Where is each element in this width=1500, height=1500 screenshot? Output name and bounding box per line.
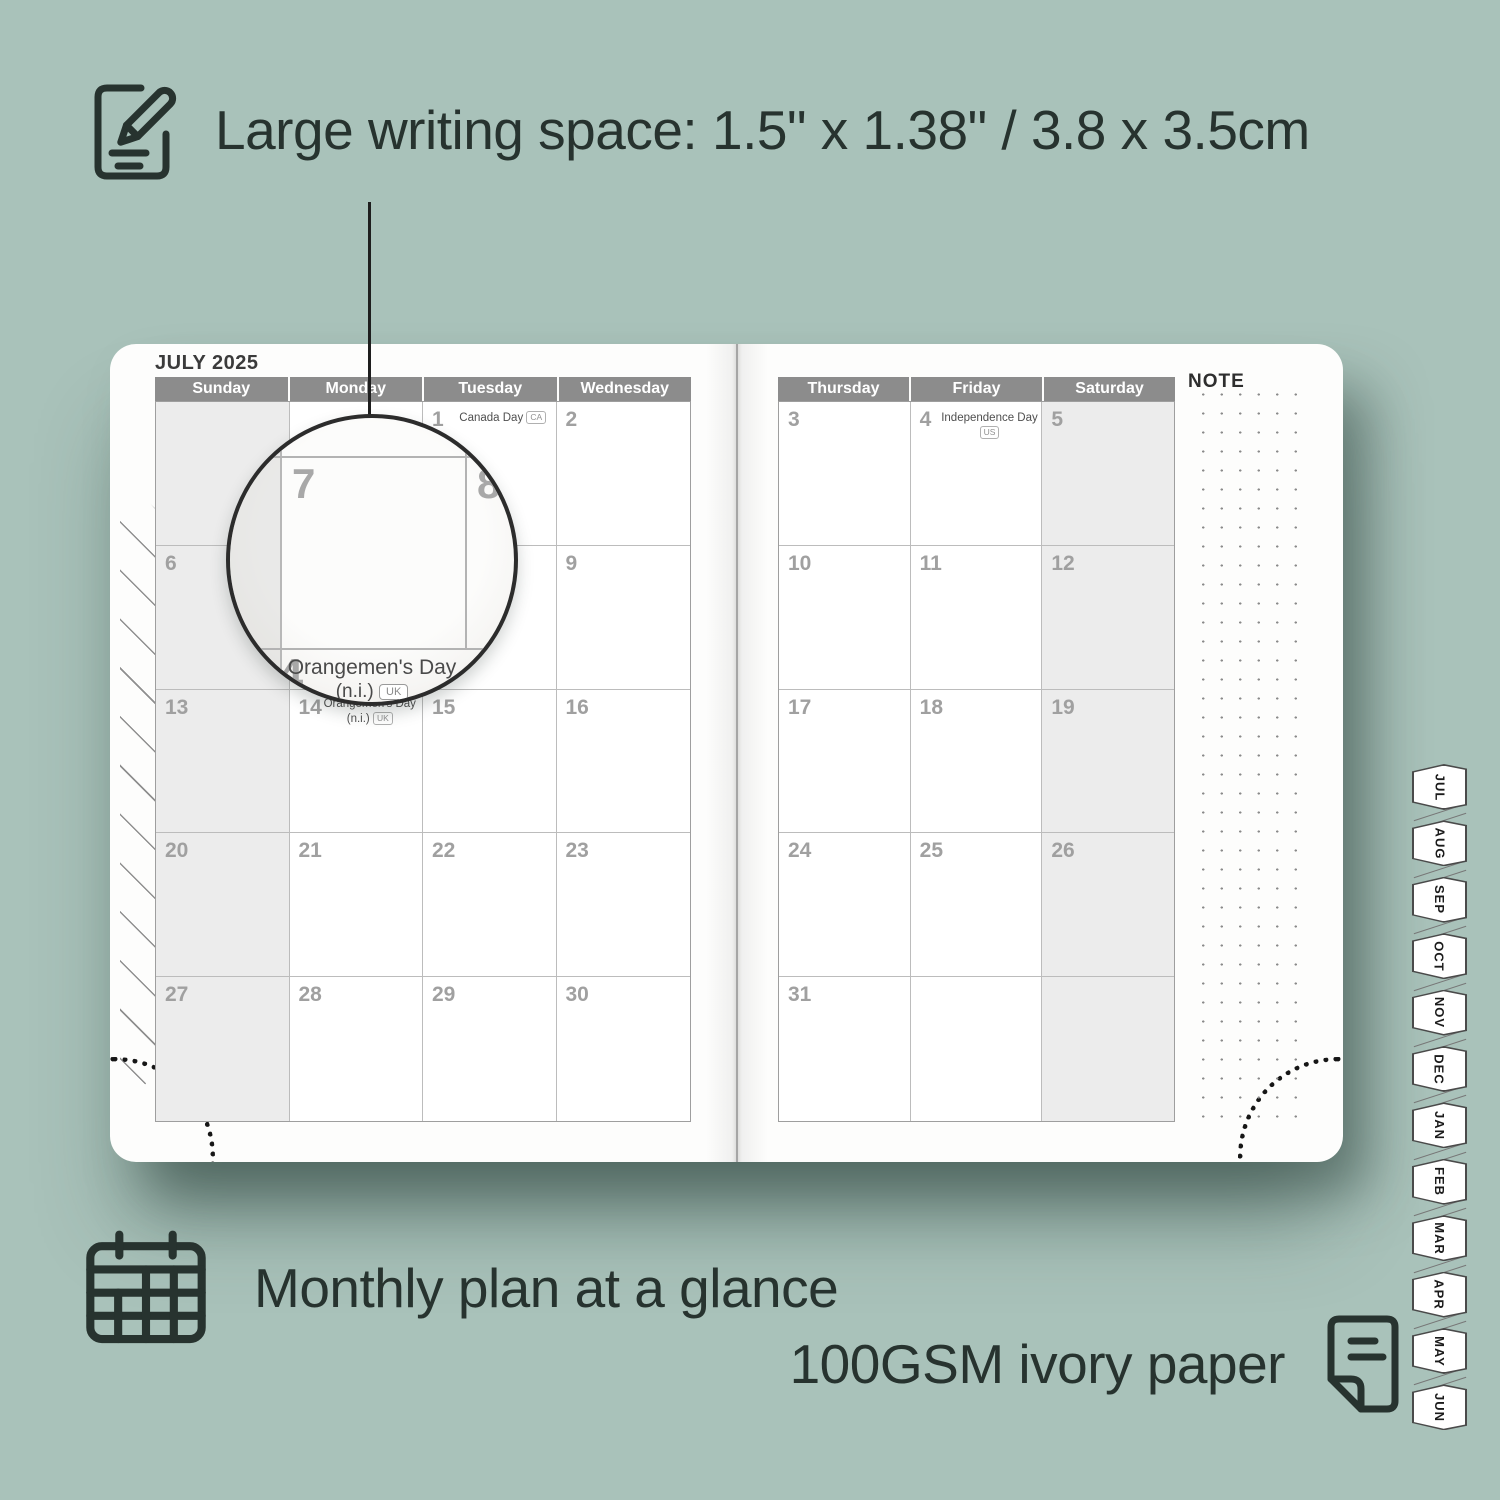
day-header: Saturday [1044,377,1175,401]
month-tab-jun: JUN [1412,1377,1468,1434]
day-number: 30 [566,983,589,1007]
country-badge: UK [379,684,408,700]
tab-label: JUL [1432,773,1447,801]
day-cell: 26 [1042,833,1174,977]
tab-face: APR [1414,1273,1466,1316]
day-cell: 29 [423,977,557,1121]
day-cell: 17 [779,690,911,834]
tab-label: MAY [1432,1336,1447,1367]
day-cell: 10 [779,546,911,690]
tab-face: MAY [1414,1330,1466,1373]
day-cell: 15 [423,690,557,834]
tab-face: SEP [1414,878,1466,921]
note-section: NOTE [1186,377,1310,1129]
tab-face: NOV [1414,991,1466,1034]
day-cell [911,977,1043,1121]
magnified-day-8: 8 [477,460,500,508]
day-cell: 2 [557,402,691,546]
day-number: 24 [788,839,811,863]
month-tab-aug: AUG [1412,813,1468,870]
day-cell: 25 [911,833,1043,977]
tab-label: AUG [1432,827,1447,859]
day-cell: 14Orangemen's Day(n.i.) UK [290,690,424,834]
paper-text: 100GSM ivory paper [790,1332,1285,1396]
country-badge: UK [373,712,393,725]
day-cell: 16 [557,690,691,834]
tab-chip: FEB [1412,1159,1467,1205]
note-label: NOTE [1188,371,1250,393]
magnified-holiday-note: (n.i.) UK [230,681,514,703]
tab-chip: MAR [1412,1215,1467,1261]
holiday-note: (n.i.) [347,713,373,725]
tab-chip: SEP [1412,877,1467,923]
day-cell: 23 [557,833,691,977]
day-cell: 19 [1042,690,1174,834]
day-cell: 31 [779,977,911,1121]
tab-chip: JUN [1412,1384,1467,1430]
tab-chip: NOV [1412,990,1467,1036]
day-number: 31 [788,983,811,1007]
day-number: 17 [788,696,811,720]
holiday-name: Canada Day [459,412,523,424]
day-number: 27 [165,983,188,1007]
product-image: Large writing space: 1.5" x 1.38" / 3.8 … [0,0,1500,1500]
calendar-grid-icon [82,1230,210,1346]
dot-grid [1186,377,1310,1129]
calendar-right-page: ThursdayFridaySaturday 34Independence Da… [778,377,1175,1122]
binding-line [736,344,738,1162]
day-number: 13 [165,696,188,720]
magnified-day-7: 7 [292,460,315,508]
day-cell: 5 [1042,402,1174,546]
tab-label: OCT [1432,941,1447,971]
day-header: Friday [911,377,1042,401]
tab-chip: MAY [1412,1328,1467,1374]
day-cell: 12 [1042,546,1174,690]
magnified-holiday-name: Orangemen's Day [230,656,514,680]
day-number: 29 [432,983,455,1007]
day-cell: 28 [290,977,424,1121]
day-number: 16 [566,696,589,720]
day-cell: 18 [911,690,1043,834]
month-tab-mar: MAR [1412,1208,1468,1265]
day-number: 6 [165,552,177,576]
day-number: 5 [1051,408,1063,432]
paper-caption: 100GSM ivory paper [790,1308,1405,1420]
calendar-grid: 34Independence Day US5101112171819242526… [778,401,1175,1122]
day-number: 28 [299,983,322,1007]
day-number: 12 [1051,552,1074,576]
day-number: 3 [788,408,800,432]
magnified-grid-line [465,418,467,650]
month-tab-feb: FEB [1412,1152,1468,1209]
tab-chip: JAN [1412,1102,1467,1148]
tab-face: DEC [1414,1048,1466,1091]
tab-chip: OCT [1412,933,1467,979]
day-number: 25 [920,839,943,863]
day-cell: 24 [779,833,911,977]
day-cell: 27 [156,977,290,1121]
magnified-grid-line [230,456,514,458]
day-cell: 20 [156,833,290,977]
month-title: JULY 2025 [155,352,258,375]
day-cell: 13 [156,690,290,834]
day-header: Monday [290,377,423,401]
writing-space-caption: Large writing space: 1.5" x 1.38" / 3.8 … [85,74,1310,186]
tab-label: APR [1432,1279,1447,1309]
tab-label: DEC [1432,1054,1447,1084]
day-number: 2 [566,408,578,432]
monthly-plan-text: Monthly plan at a glance [254,1256,838,1320]
month-tab-jan: JAN [1412,1095,1468,1152]
day-number: 23 [566,839,589,863]
day-number: 26 [1051,839,1074,863]
day-number: 9 [566,552,578,576]
tab-face: FEB [1414,1160,1466,1203]
day-number: 11 [920,552,942,576]
tab-label: FEB [1432,1167,1447,1196]
day-number: 21 [299,839,322,863]
month-tab-sep: SEP [1412,870,1468,927]
day-cell: 9 [557,546,691,690]
holiday-label: Independence Day US [941,411,1039,441]
day-number: 10 [788,552,811,576]
day-cell: 3 [779,402,911,546]
tab-face: JAN [1414,1104,1466,1147]
day-number: 18 [920,696,943,720]
tab-face: AUG [1414,822,1466,865]
page-edge-hatching [120,478,160,1106]
day-number: 4 [920,408,932,432]
tab-chip: JUL [1412,764,1467,810]
day-header: Tuesday [424,377,557,401]
day-cell [1042,977,1174,1121]
day-cell: 11 [911,546,1043,690]
monthly-plan-caption: Monthly plan at a glance [82,1230,838,1346]
day-header-row: SundayMondayTuesdayWednesday [155,377,691,401]
day-cell: 22 [423,833,557,977]
tab-label: JUN [1432,1393,1447,1422]
month-tab-may: MAY [1412,1321,1468,1378]
tab-chip: DEC [1412,1046,1467,1092]
tab-label: SEP [1432,885,1447,914]
magnifier-circle: 7 8 14 Orangemen's Day (n.i.) UK [226,414,518,706]
tab-label: NOV [1432,997,1447,1028]
holiday-name: Independence Day [941,412,1038,424]
tab-face: JUL [1414,766,1466,809]
holiday-label: Canada Day CA [453,411,553,426]
tab-face: JUN [1414,1386,1466,1429]
day-cell: 4Independence Day US [911,402,1043,546]
tab-face: MAR [1414,1217,1466,1260]
day-header: Sunday [155,377,288,401]
day-header: Wednesday [559,377,692,401]
notepad-pencil-icon [85,74,185,186]
day-number: 22 [432,839,455,863]
tab-chip: AUG [1412,820,1467,866]
month-tab-oct: OCT [1412,926,1468,983]
tab-label: MAR [1432,1222,1447,1255]
magnifier-pointer-line [368,202,371,420]
day-cell: 21 [290,833,424,977]
day-header: Thursday [778,377,909,401]
month-tab-apr: APR [1412,1265,1468,1322]
day-cell: 30 [557,977,691,1121]
day-number: 20 [165,839,188,863]
writing-space-text: Large writing space: 1.5" x 1.38" / 3.8 … [215,98,1310,162]
month-tab-nov: NOV [1412,983,1468,1040]
country-badge: CA [526,411,546,424]
month-tab-jul: JUL [1412,757,1468,814]
tab-chip: APR [1412,1272,1467,1318]
day-number: 19 [1051,696,1074,720]
month-tab-strip: JULAUGSEPOCTNOVDECJANFEBMARAPRMAYJUN [1412,757,1468,1437]
paper-sheet-icon [1321,1308,1405,1420]
month-tab-dec: DEC [1412,1039,1468,1096]
day-header-row: ThursdayFridaySaturday [778,377,1175,401]
tab-face: OCT [1414,935,1466,978]
country-badge: US [980,426,1000,439]
tab-label: JAN [1432,1111,1447,1140]
